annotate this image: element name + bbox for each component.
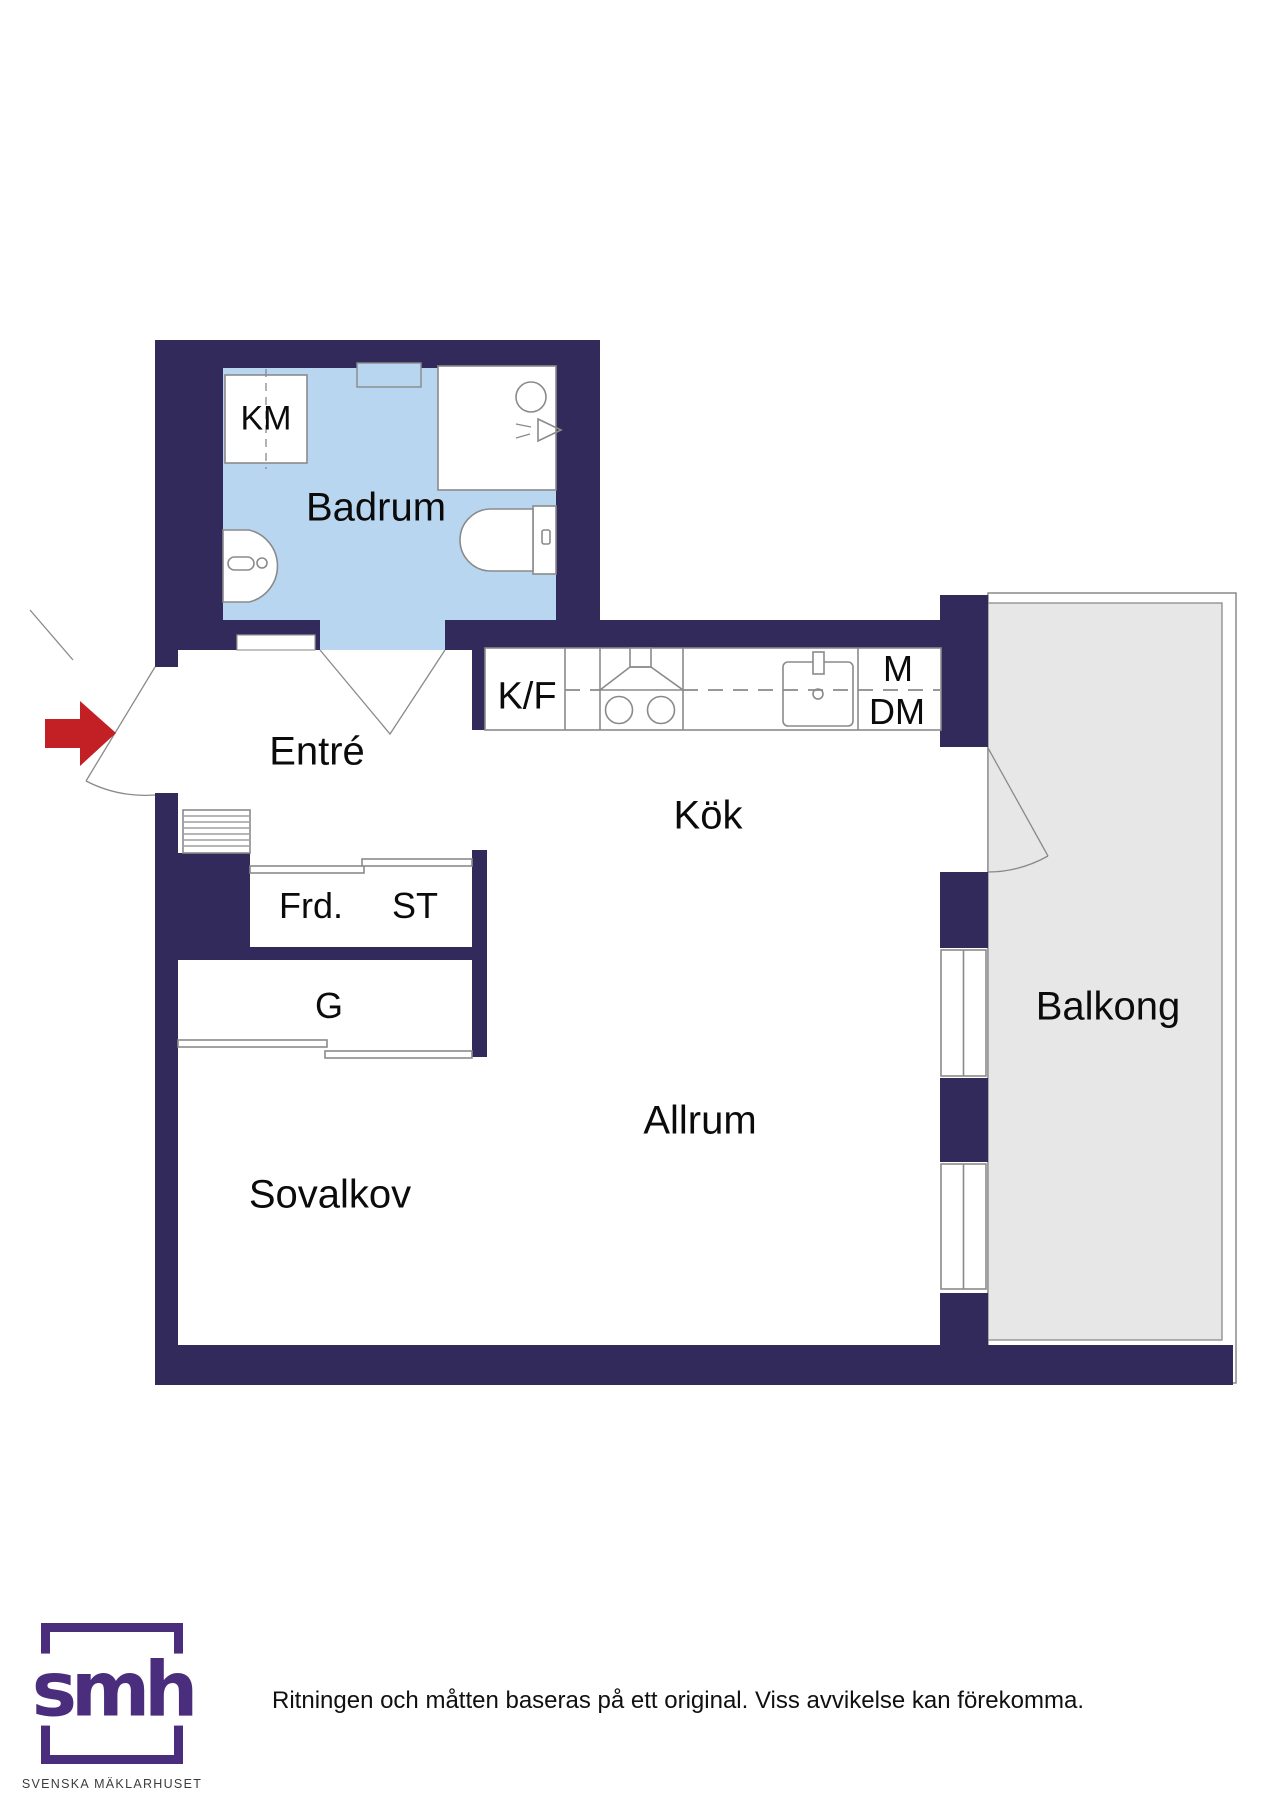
kitchen-faucet: [813, 652, 824, 674]
wall-right-b: [940, 872, 988, 948]
stove-burner-left: [606, 697, 633, 724]
wall-bathroom-right: [556, 340, 600, 650]
wall-closet-divider: [178, 947, 487, 960]
outside-door-line: [30, 610, 73, 660]
wall-kitchen-stub: [472, 648, 485, 730]
label-badrum: Badrum: [306, 486, 446, 531]
wall-closet-block: [178, 853, 250, 947]
label-km: KM: [241, 400, 292, 439]
label-balkong: Balkong: [1036, 985, 1181, 1030]
label-allrum: Allrum: [643, 1099, 756, 1144]
wall-band-kitchen: [445, 620, 940, 650]
smh-logo-text: smh: [29, 1653, 196, 1725]
wall-right-a: [940, 595, 988, 747]
entrance-arrow-icon: [45, 701, 116, 766]
stove-burner-right: [648, 697, 675, 724]
floorplan-page: KM Badrum Entré K/F M DM Kök Frd. ST G A…: [0, 0, 1280, 1811]
floorplan-drawing: [0, 0, 1280, 1811]
entry-door-arc: [86, 781, 155, 795]
st-sliding-door: [362, 859, 472, 866]
g-sliding-door-left: [178, 1040, 327, 1047]
stove-hood-chimney: [630, 648, 651, 667]
wall-left-upper: [155, 650, 178, 667]
frd-sliding-door: [250, 866, 364, 873]
balcony-floor: [988, 603, 1222, 1340]
disclaimer-text: Ritningen och måtten baseras på ett orig…: [272, 1687, 1084, 1715]
toilet-bowl: [460, 509, 533, 571]
label-kok: Kök: [674, 794, 743, 839]
label-kf: K/F: [497, 676, 556, 719]
bathroom-wall-niche: [357, 363, 421, 387]
label-dm: DM: [869, 691, 925, 733]
toilet-tank: [533, 506, 556, 574]
label-m: M: [883, 648, 913, 690]
wall-bottom: [155, 1345, 1233, 1385]
smh-logo: smh: [41, 1623, 183, 1764]
wall-right-d: [940, 1293, 988, 1385]
label-g: G: [315, 985, 343, 1027]
bathroom-door-swing: [320, 650, 445, 734]
wall-left-lower: [155, 793, 178, 1385]
label-sovalkov: Sovalkov: [249, 1173, 411, 1218]
wall-right-c: [940, 1078, 988, 1162]
bathroom-door-opening: [320, 620, 445, 650]
wall-closet-right: [472, 850, 487, 1057]
label-st: ST: [392, 885, 438, 927]
label-entre: Entré: [269, 730, 365, 775]
g-sliding-door-right: [325, 1051, 472, 1058]
wall-bathroom-left: [155, 340, 223, 650]
logo-subtext: SVENSKA MÄKLARHUSET: [22, 1777, 202, 1791]
wall-threshold-inset: [237, 635, 315, 650]
label-frd: Frd.: [279, 885, 343, 927]
